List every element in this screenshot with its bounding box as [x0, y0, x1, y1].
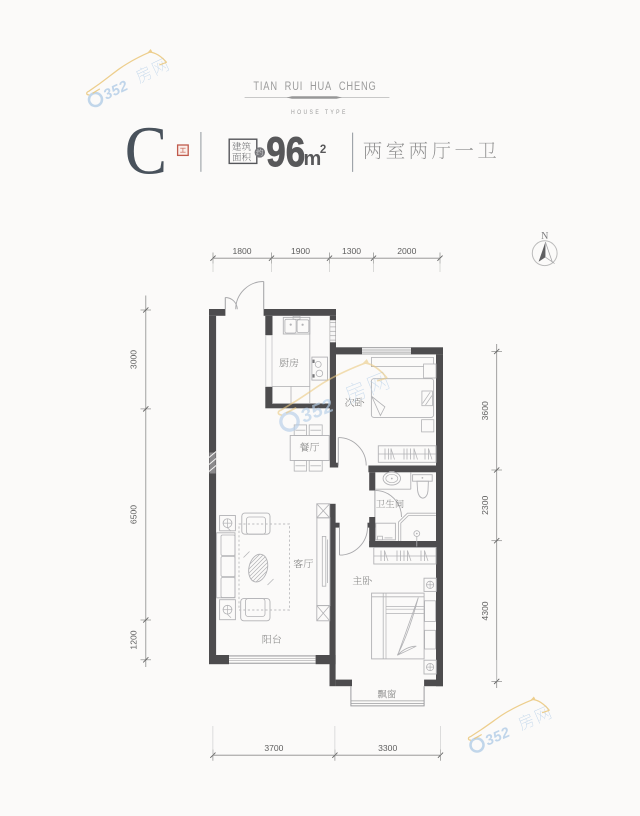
svg-text:N: N: [541, 231, 548, 242]
svg-text:H O U S E T Y P E: H O U S E T Y P E: [291, 109, 346, 116]
svg-text:1200: 1200: [129, 630, 139, 649]
svg-text:3700: 3700: [264, 743, 283, 753]
svg-text:6500: 6500: [129, 505, 139, 524]
svg-text:1800: 1800: [232, 246, 251, 256]
svg-text:C: C: [125, 113, 167, 189]
svg-text:3300: 3300: [378, 743, 397, 753]
svg-text:1300: 1300: [342, 246, 361, 256]
svg-text:2: 2: [320, 144, 326, 156]
svg-text:1900: 1900: [291, 246, 310, 256]
svg-text:m: m: [304, 148, 322, 170]
svg-text:3600: 3600: [480, 401, 490, 420]
svg-text:2000: 2000: [397, 246, 416, 256]
svg-text:4300: 4300: [480, 601, 490, 620]
svg-text:2300: 2300: [480, 496, 490, 515]
svg-text:3000: 3000: [129, 350, 139, 369]
svg-text:TIAN RUI HUA CHENG: TIAN RUI HUA CHENG: [253, 80, 376, 94]
svg-text:96: 96: [266, 129, 305, 176]
